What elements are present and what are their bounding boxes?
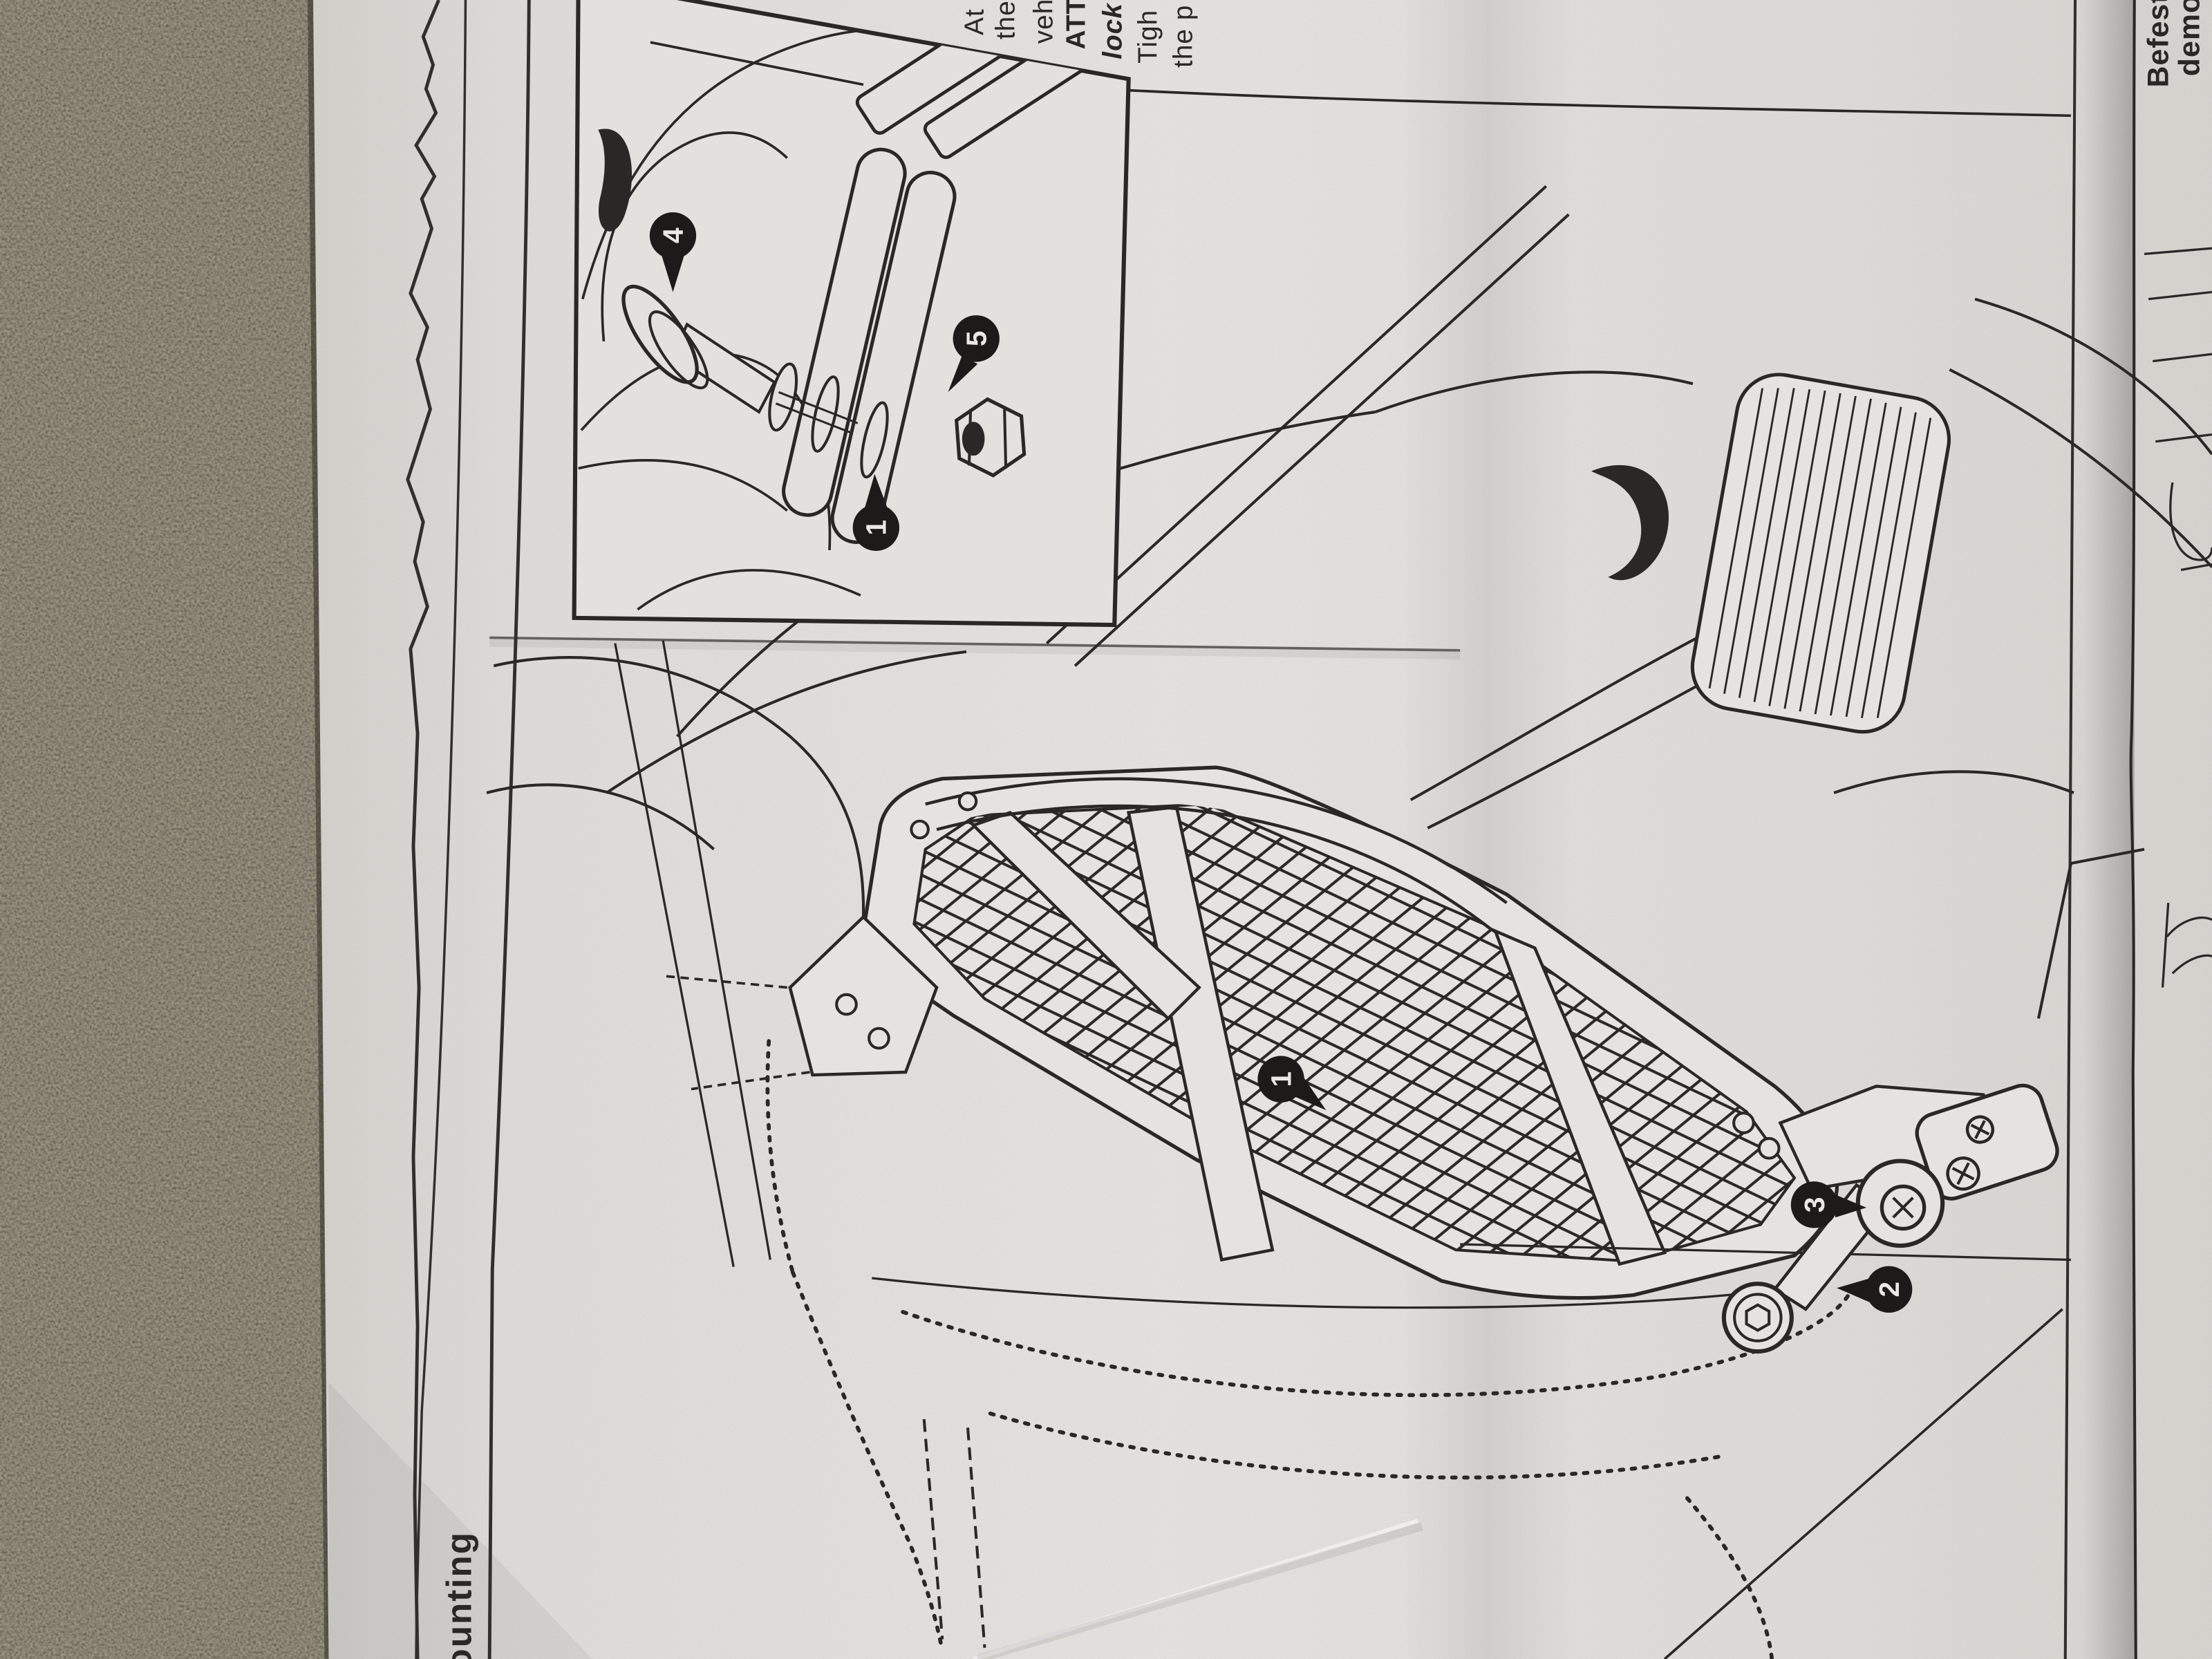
instruction-photo-canvas: ounting At the veh ATT lock Tigh the p	[0, 0, 2212, 1659]
photo-of-instruction-sheet: ounting At the veh ATT lock Tigh the p	[0, 0, 2212, 1659]
photo-vignette	[0, 0, 2212, 1659]
